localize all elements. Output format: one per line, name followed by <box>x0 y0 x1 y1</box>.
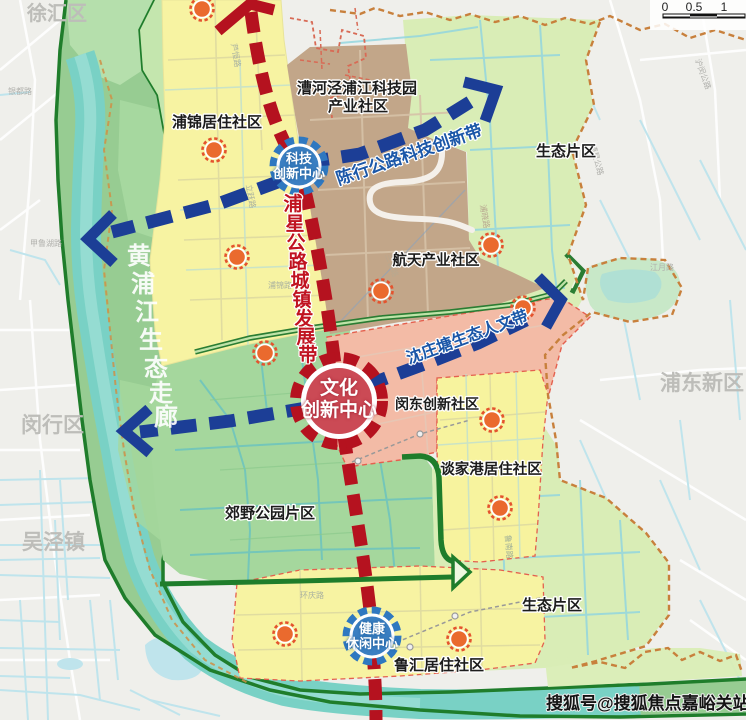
svg-text:产业社区: 产业社区 <box>328 97 388 115</box>
svg-text:鲁南路: 鲁南路 <box>503 534 515 559</box>
svg-text:生态片区: 生态片区 <box>522 596 582 614</box>
svg-text:星: 星 <box>285 213 304 235</box>
svg-text:搜狐号@搜狐焦点嘉峪关站: 搜狐号@搜狐焦点嘉峪关站 <box>546 693 746 713</box>
svg-text:漕河泾浦江科技园: 漕河泾浦江科技园 <box>297 79 417 97</box>
svg-text:健康: 健康 <box>359 621 386 636</box>
svg-text:态: 态 <box>144 354 168 382</box>
svg-text:镇: 镇 <box>292 288 311 311</box>
svg-text:带: 带 <box>298 344 317 366</box>
svg-text:0: 0 <box>662 0 669 14</box>
svg-text:江: 江 <box>135 299 159 326</box>
svg-text:浦锦居住社区: 浦锦居住社区 <box>172 113 262 131</box>
svg-text:廊: 廊 <box>154 403 178 431</box>
svg-text:黄: 黄 <box>127 243 151 270</box>
svg-text:环庆路: 环庆路 <box>300 590 324 600</box>
svg-text:休闲中心: 休闲中心 <box>345 636 398 651</box>
svg-text:谈家港居住社区: 谈家港居住社区 <box>440 460 542 478</box>
svg-text:航天产业社区: 航天产业社区 <box>393 251 480 269</box>
svg-text:鲁汇居住社区: 鲁汇居住社区 <box>394 656 484 674</box>
svg-text:城: 城 <box>290 269 309 292</box>
svg-text:闵东创新社区: 闵东创新社区 <box>395 396 479 412</box>
svg-text:走: 走 <box>149 380 173 407</box>
svg-text:生态片区: 生态片区 <box>536 142 596 160</box>
svg-text:浦东新区: 浦东新区 <box>660 371 744 395</box>
svg-text:1: 1 <box>721 0 728 14</box>
svg-text:公: 公 <box>286 232 305 254</box>
svg-text:甲鲁湖路: 甲鲁湖路 <box>30 238 62 248</box>
svg-text:江月路: 江月路 <box>650 262 674 272</box>
svg-text:吴泾镇: 吴泾镇 <box>22 531 85 554</box>
svg-text:0.5: 0.5 <box>686 0 703 14</box>
svg-text:银都路: 银都路 <box>8 86 32 96</box>
svg-text:创新中心: 创新中心 <box>300 398 377 421</box>
svg-text:创新中心: 创新中心 <box>272 166 325 181</box>
svg-text:浦: 浦 <box>283 192 302 215</box>
svg-text:浦: 浦 <box>131 270 155 298</box>
svg-text:浦锦路: 浦锦路 <box>268 280 292 290</box>
svg-text:文化: 文化 <box>320 376 358 399</box>
svg-text:生: 生 <box>139 327 163 354</box>
svg-text:徐汇区: 徐汇区 <box>26 1 87 25</box>
svg-text:闵行区: 闵行区 <box>21 413 84 437</box>
svg-text:路: 路 <box>288 250 308 273</box>
svg-text:科技: 科技 <box>286 151 313 166</box>
svg-text:郊野公园片区: 郊野公园片区 <box>225 504 315 522</box>
